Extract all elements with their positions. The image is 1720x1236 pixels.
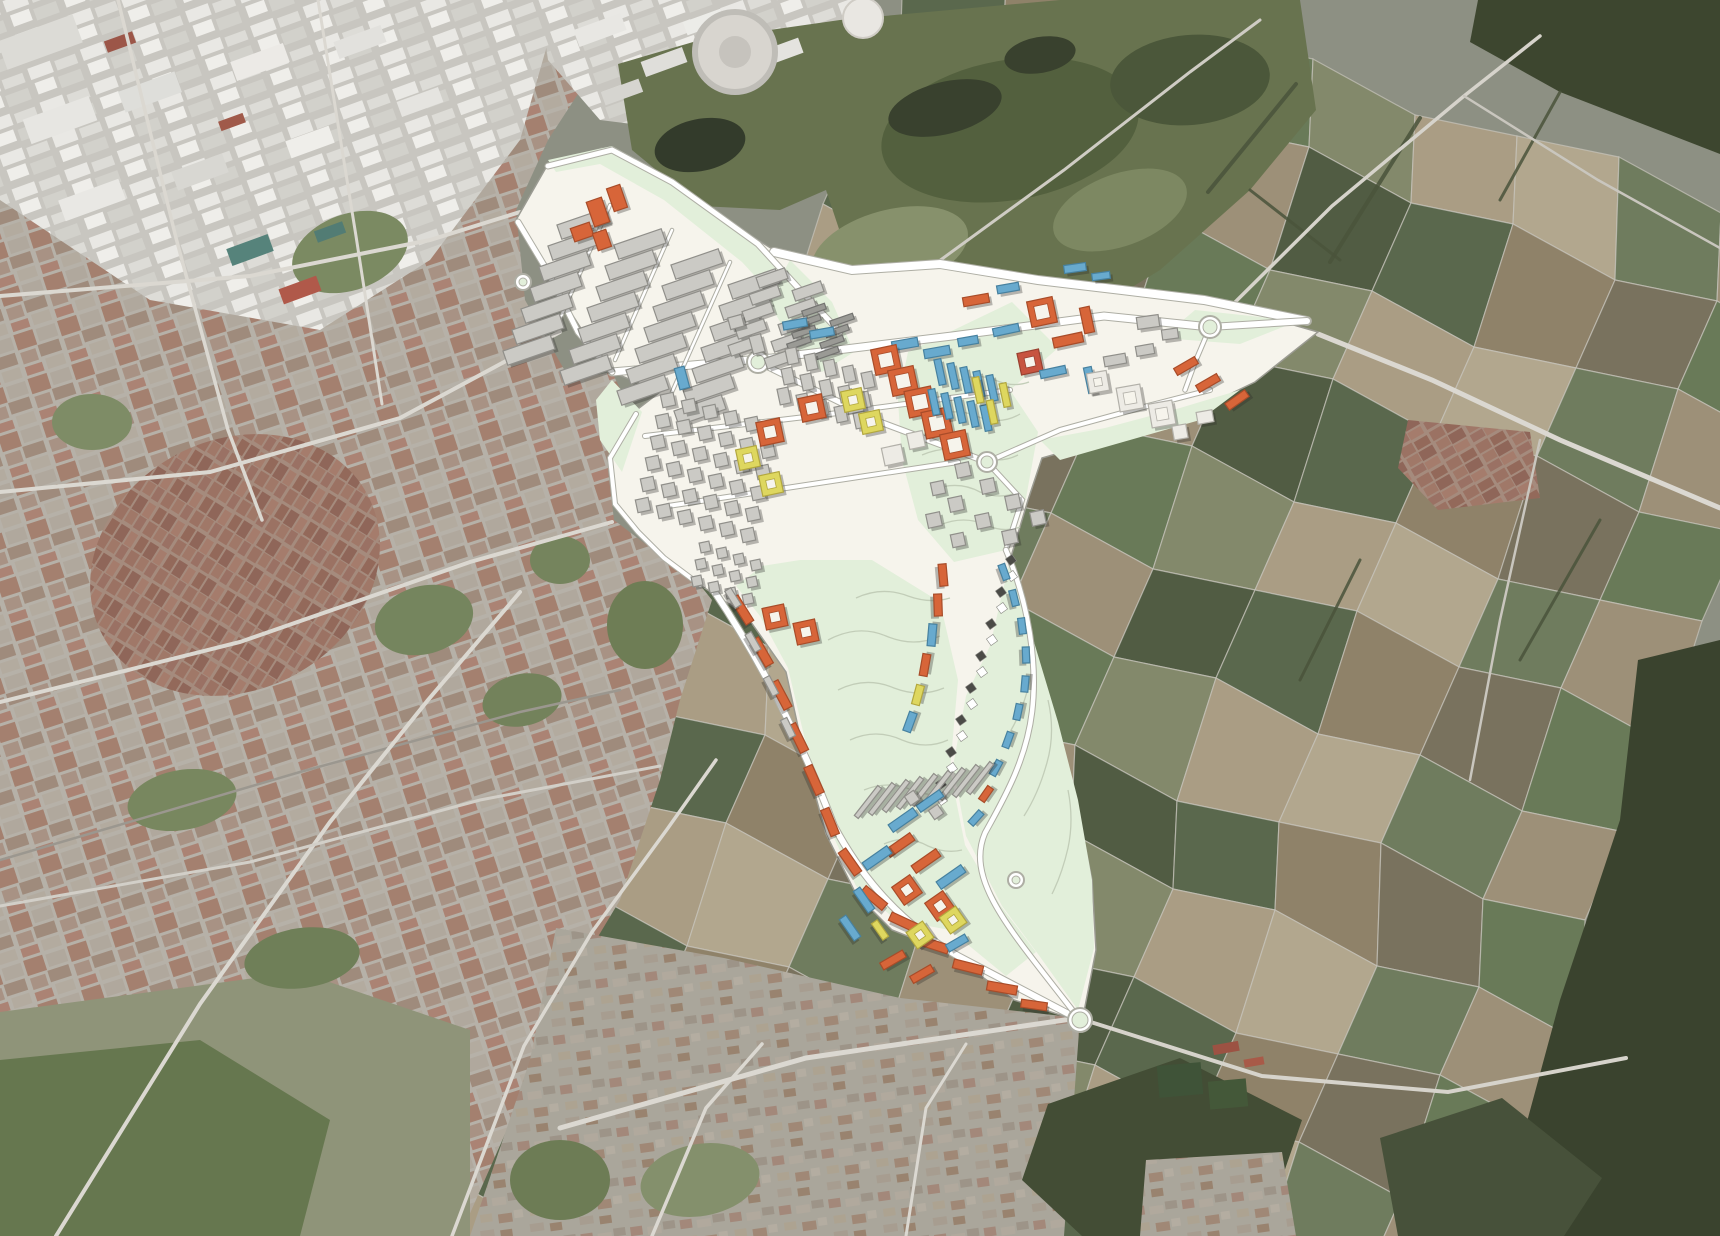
- building-block: [650, 434, 665, 449]
- plan-building-w: [881, 444, 907, 470]
- plan-building-o: [930, 594, 942, 619]
- plan-building-courtyard-o: [793, 618, 822, 648]
- plan-building-b: [927, 621, 941, 646]
- building-block: [745, 506, 760, 521]
- scene-svg: [0, 0, 1720, 1236]
- building-block: [1021, 676, 1029, 693]
- plan-building-courtyard-y: [759, 471, 787, 500]
- building-block: [655, 413, 670, 428]
- building-block: [692, 446, 707, 461]
- building-block: [656, 503, 671, 518]
- building-block: [955, 462, 972, 479]
- plan-building-courtyard-o: [798, 393, 830, 425]
- building-block: [1136, 315, 1159, 330]
- building-block: [1005, 494, 1022, 511]
- building-block: [746, 576, 758, 588]
- building-block: [661, 482, 676, 497]
- building-block: [1002, 529, 1019, 546]
- building-block: [930, 480, 945, 495]
- building-block: [687, 467, 702, 482]
- courtyard-hole: [743, 453, 754, 464]
- building-block: [719, 521, 734, 536]
- roundabout-island: [981, 456, 993, 468]
- plan-building-courtyard-o: [1027, 296, 1061, 331]
- gas-dome: [843, 0, 883, 38]
- roundabout-island: [519, 278, 527, 286]
- plan-building-courtyard-o: [756, 417, 788, 449]
- building-block: [708, 581, 720, 593]
- photo-suburb-green-2: [510, 1140, 610, 1220]
- building-block: [697, 425, 712, 440]
- courtyard-hole: [1093, 377, 1102, 386]
- plan-building-b: [1019, 647, 1030, 666]
- aerial-masterplan-scene: [0, 0, 1720, 1236]
- building-block: [698, 515, 713, 530]
- building-block: [729, 479, 744, 494]
- photo-park-4: [52, 394, 132, 450]
- photo-roof: [1208, 1078, 1248, 1109]
- building-block: [1196, 410, 1214, 425]
- courtyard-hole: [805, 401, 819, 415]
- courtyard-hole: [800, 626, 812, 638]
- courtyard-hole: [895, 373, 912, 390]
- building-block: [635, 497, 650, 512]
- building-block: [671, 440, 686, 455]
- building-block: [676, 419, 691, 434]
- building-block: [948, 496, 965, 513]
- building-block: [934, 594, 943, 616]
- building-block: [926, 512, 943, 529]
- photo-region-village-bottom: [1140, 1152, 1296, 1236]
- building-block: [712, 564, 724, 576]
- building-block: [666, 461, 681, 476]
- building-block: [681, 398, 696, 413]
- stadium-infield: [719, 36, 751, 68]
- building-block: [716, 547, 728, 559]
- building-block: [750, 559, 762, 571]
- building-block: [645, 455, 660, 470]
- plan-building-courtyard-o: [940, 429, 974, 464]
- plan-building-courtyard-y: [859, 409, 887, 438]
- building-block: [695, 558, 707, 570]
- courtyard-hole: [911, 393, 929, 411]
- courtyard-hole: [1155, 407, 1169, 421]
- plan-building-courtyard-w: [1086, 370, 1112, 397]
- photo-park-wedge: [607, 581, 683, 669]
- building-block: [702, 404, 717, 419]
- building-block: [723, 410, 738, 425]
- roundabout-island: [751, 355, 765, 369]
- plan-building-b: [1021, 673, 1033, 692]
- building-block: [975, 513, 992, 530]
- courtyard-hole: [763, 425, 777, 439]
- building-block: [950, 532, 965, 547]
- building-block: [640, 476, 655, 491]
- courtyard-hole: [1024, 356, 1036, 368]
- building-block: [660, 392, 675, 407]
- plan-building-courtyard-w: [1116, 384, 1147, 416]
- building-block: [1161, 328, 1178, 340]
- building-block: [1172, 424, 1188, 440]
- building-block: [682, 488, 697, 503]
- building-block: [713, 452, 728, 467]
- building-block: [729, 570, 741, 582]
- courtyard-hole: [947, 437, 964, 454]
- courtyard-hole: [1034, 304, 1051, 321]
- plan-building-courtyard-y: [736, 445, 764, 474]
- roundabout-island: [1072, 1012, 1088, 1028]
- building-block: [742, 593, 754, 605]
- roundabout-island: [1012, 876, 1020, 884]
- courtyard-hole: [1123, 391, 1137, 405]
- courtyard-hole: [848, 395, 859, 406]
- plan-building-courtyard-y: [841, 387, 869, 416]
- building-block: [703, 494, 718, 509]
- courtyard-hole: [866, 417, 877, 428]
- courtyard-hole: [766, 479, 777, 490]
- building-block: [733, 553, 745, 565]
- building-block: [677, 509, 692, 524]
- building-block: [980, 478, 997, 495]
- building-block: [1022, 647, 1030, 663]
- roundabout-island: [1203, 320, 1217, 334]
- building-block: [691, 575, 703, 587]
- building-block: [699, 541, 711, 553]
- building-block: [927, 624, 937, 647]
- building-block: [724, 500, 739, 515]
- plan-building-o: [935, 564, 949, 589]
- building-block: [740, 527, 755, 542]
- plan-building-courtyard-o: [762, 603, 791, 633]
- building-block: [907, 431, 926, 450]
- courtyard-hole: [769, 611, 781, 623]
- building-block: [708, 473, 723, 488]
- courtyard-hole: [878, 352, 895, 369]
- building-block: [718, 431, 733, 446]
- building-block: [938, 564, 948, 587]
- building-block: [881, 444, 904, 466]
- building-block: [1030, 510, 1047, 527]
- photo-roof: [1157, 1062, 1204, 1098]
- building-block: [1018, 618, 1027, 635]
